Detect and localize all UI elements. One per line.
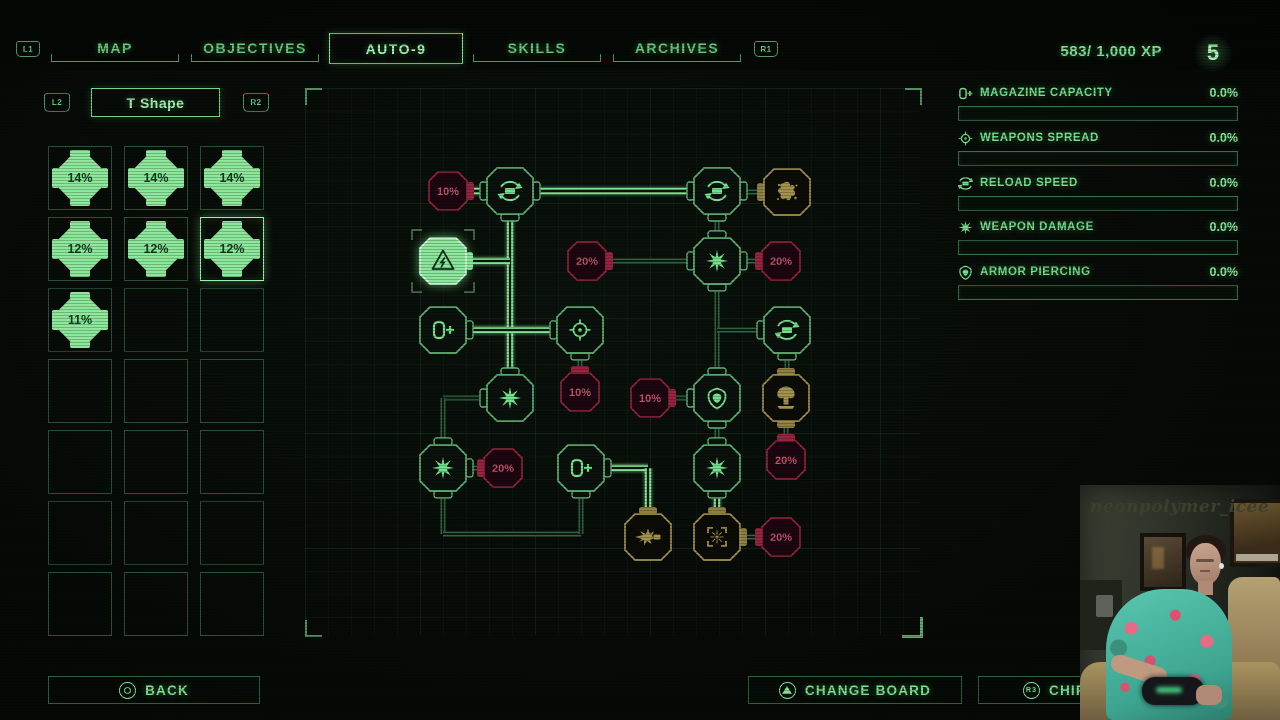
auto9-chip[interactable]: 14% [128, 150, 184, 206]
stat-label: WEAPON DAMAGE [980, 221, 1094, 233]
auto9-chip[interactable]: 12% [52, 221, 108, 277]
stat-progress-bar [958, 285, 1238, 300]
back-button[interactable]: BACK [48, 676, 260, 704]
malus-percent-label: 20% [770, 532, 792, 544]
malus-percent-label: 10% [569, 387, 591, 399]
malus-node-6[interactable]: 20% [477, 449, 522, 487]
r3-button-icon: R3 [1023, 682, 1040, 699]
earbud [1219, 563, 1224, 569]
back-label: BACK [145, 683, 189, 698]
chip-bonus-percent: 12% [128, 221, 184, 277]
stat-armor-piercing: ARMOR PIERCING 0.0% [958, 264, 1238, 300]
watermark-text: neonpolymer_icee [1090, 497, 1280, 517]
damage-node-b[interactable] [420, 438, 473, 498]
reload-icon [958, 176, 973, 191]
auto9-chip[interactable]: 12% [128, 221, 184, 277]
stat-value: 0.0% [1210, 265, 1239, 279]
malus-node-5[interactable]: 10% [631, 379, 676, 417]
stat-value: 0.0% [1210, 176, 1239, 190]
burst-icon [432, 457, 454, 479]
stat-weapons-spread: WEAPONS SPREAD 0.0% [958, 130, 1238, 166]
reload-node-c[interactable] [757, 307, 810, 360]
stat-progress-bar [958, 196, 1238, 211]
malus-node-4[interactable]: 10% [561, 366, 599, 411]
malus-percent-label: 20% [770, 256, 792, 268]
malus-percent-label: 10% [639, 393, 661, 405]
reload-node-a[interactable] [480, 168, 540, 221]
auto9-chip[interactable]: 12% [204, 221, 260, 277]
stat-magazine-capacity: MAGAZINE CAPACITY 0.0% [958, 85, 1238, 121]
stat-progress-bar [958, 240, 1238, 255]
game-controller [1142, 677, 1204, 705]
burst-icon [958, 220, 973, 235]
chip-bonus-percent: 11% [52, 292, 108, 348]
nuke-gold-node[interactable] [763, 368, 809, 428]
chip-bonus-percent: 14% [204, 150, 260, 206]
chip-slot[interactable]: 12% [48, 217, 112, 281]
auto9-chip[interactable]: 14% [204, 150, 260, 206]
chip-slot[interactable]: 14% [124, 146, 188, 210]
chip-slot[interactable]: 11% [48, 288, 112, 352]
stat-weapon-damage: WEAPON DAMAGE 0.0% [958, 219, 1238, 255]
picture-frame [1140, 533, 1186, 591]
auto9-chip[interactable]: 14% [52, 150, 108, 206]
damage-node-c[interactable] [687, 231, 747, 291]
game-screen: L1 MAP OBJECTIVES AUTO-9 SKILLS ARCHIVES… [0, 0, 1280, 720]
malus-percent-label: 20% [576, 256, 598, 268]
malus-percent-label: 20% [775, 455, 797, 467]
armor-node[interactable] [687, 368, 740, 428]
chip-slot[interactable]: 14% [48, 146, 112, 210]
spread-node-a[interactable] [550, 307, 603, 360]
burst-icon [706, 250, 728, 272]
malus-node-3[interactable]: 20% [755, 242, 800, 280]
burst-icon [499, 387, 521, 409]
stat-label: ARMOR PIERCING [980, 266, 1091, 278]
chip-bonus-percent: 14% [128, 150, 184, 206]
stat-value: 0.0% [1210, 220, 1239, 234]
stat-reload-speed: RELOAD SPEED 0.0% [958, 175, 1238, 211]
malus-percent-label: 20% [492, 463, 514, 475]
stat-value: 0.0% [1210, 86, 1239, 100]
chip-slot[interactable]: 12% [124, 217, 188, 281]
streamer-face [1190, 543, 1221, 585]
magazine-node-a[interactable] [420, 307, 473, 353]
malus-node-8[interactable]: 20% [755, 518, 800, 556]
chip-bonus-percent: 12% [204, 221, 260, 277]
damage-node-d[interactable] [694, 438, 740, 498]
reload-node-b[interactable] [687, 168, 747, 221]
malus-percent-label: 10% [437, 186, 459, 198]
chip-slot[interactable]: 14% [200, 146, 264, 210]
chip-bonus-percent: 14% [52, 150, 108, 206]
burst-icon [706, 457, 728, 479]
malus-node-2[interactable]: 20% [568, 242, 613, 280]
damage-node-a[interactable] [480, 368, 533, 421]
chip-slot[interactable]: 12% [200, 217, 264, 281]
auto9-chip[interactable]: 11% [52, 292, 108, 348]
change-board-label: CHANGE BOARD [805, 683, 931, 698]
reticle-gold-node[interactable] [694, 507, 747, 560]
stat-label: WEAPONS SPREAD [980, 132, 1099, 144]
malus-node-7[interactable]: 20% [767, 434, 805, 479]
power-core-node[interactable] [412, 230, 474, 292]
crosshair-icon [958, 131, 973, 146]
stat-label: RELOAD SPEED [980, 177, 1078, 189]
streamer-hand [1196, 685, 1222, 705]
splat-gold-node[interactable] [757, 169, 810, 215]
shelf-object [1096, 595, 1113, 617]
stat-value: 0.0% [1210, 131, 1239, 145]
malus-node-1[interactable]: 10% [429, 172, 474, 210]
circle-button-icon [119, 682, 136, 699]
muzzle-gold-node[interactable] [625, 507, 671, 560]
chip-bonus-percent: 12% [52, 221, 108, 277]
magazine-node-b[interactable] [558, 445, 611, 498]
stat-progress-bar [958, 151, 1238, 166]
stat-progress-bar [958, 106, 1238, 121]
magazine-icon [958, 86, 973, 101]
stat-label: MAGAZINE CAPACITY [980, 87, 1113, 99]
webcam-overlay: neonpolymer_icee [1080, 485, 1280, 720]
change-board-button[interactable]: CHANGE BOARD [748, 676, 962, 704]
triangle-button-icon [779, 682, 796, 699]
shield-icon [958, 265, 973, 280]
